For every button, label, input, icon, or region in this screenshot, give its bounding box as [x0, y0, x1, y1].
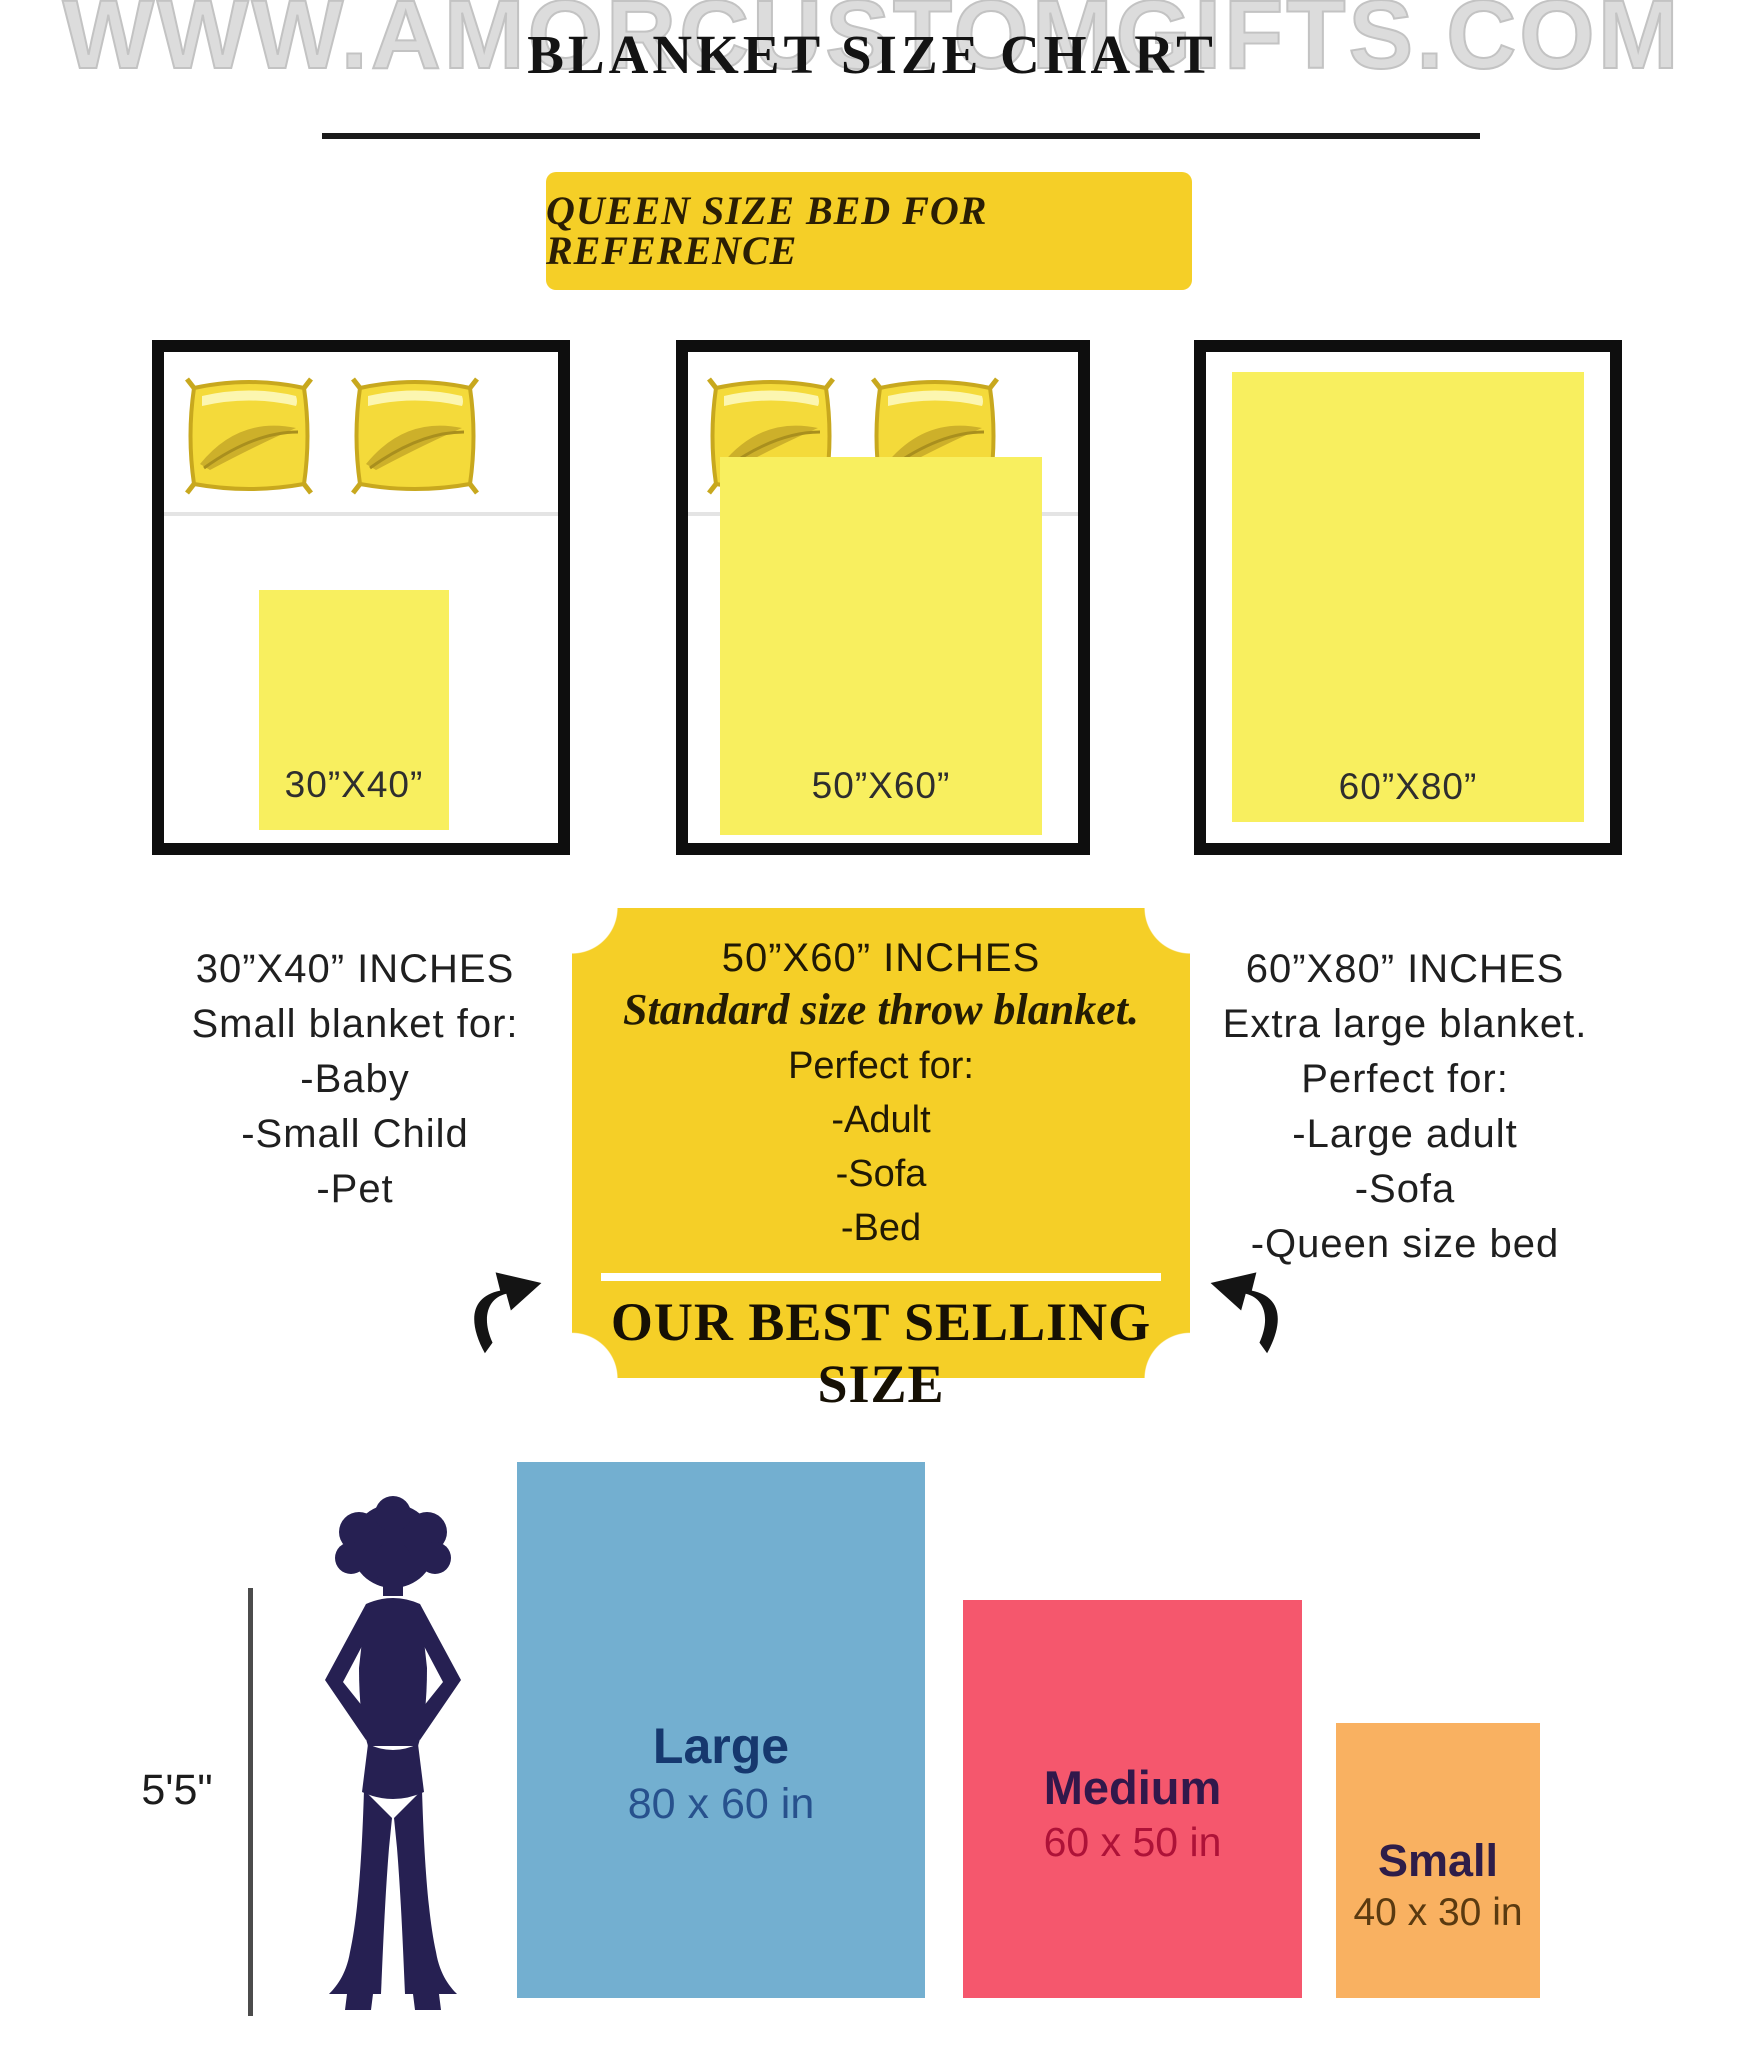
swatch-name: Large — [517, 1717, 925, 1775]
size-use-item: -Baby — [105, 1052, 605, 1107]
blanket-overlay-60x80: 60”X80” — [1232, 372, 1584, 822]
blanket-swatch-small: Small 40 x 30 in — [1336, 1723, 1540, 1998]
ticket-divider — [601, 1273, 1161, 1281]
best-seller-ticket-50x60: 50”X60” INCHES Standard size throw blank… — [572, 908, 1190, 1378]
pillow-icon — [184, 372, 314, 500]
curved-arrow-left-icon — [1206, 1262, 1290, 1356]
blanket-swatch-large: Large 80 x 60 in — [517, 1462, 925, 1998]
perfect-for-label: Perfect for: — [572, 1039, 1190, 1093]
swatch-dimensions: 80 x 60 in — [517, 1775, 925, 1833]
swatch-dimensions: 40 x 30 in — [1336, 1887, 1540, 1940]
size-use-item: -Sofa — [572, 1147, 1190, 1201]
bed-diagram-60x80: 60”X80” — [1194, 340, 1622, 855]
swatch-dimensions: 60 x 50 in — [963, 1815, 1302, 1870]
pillow-icon — [350, 372, 480, 500]
bed-sheet-divider — [164, 512, 558, 516]
swatch-name: Medium — [963, 1760, 1302, 1815]
blanket-size-label: 50”X60” — [720, 765, 1042, 807]
height-ruler-line — [248, 1588, 253, 2016]
size-column-title: 50”X60” INCHES — [572, 908, 1190, 981]
page-title: BLANKET SIZE CHART — [0, 22, 1744, 88]
size-column-title: 30”X40” INCHES — [105, 942, 605, 997]
size-column-30x40: 30”X40” INCHES Small blanket for: -Baby … — [105, 942, 605, 1217]
size-use-item: -Sofa — [1155, 1162, 1655, 1217]
bed-diagram-50x60: 50”X60” — [676, 340, 1090, 855]
size-use-item: -Small Child — [105, 1107, 605, 1162]
height-label: 5'5" — [112, 1766, 242, 1815]
curved-arrow-right-icon — [462, 1262, 546, 1356]
size-column-60x80: 60”X80” INCHES Extra large blanket. Perf… — [1155, 942, 1655, 1272]
title-underline — [322, 133, 1480, 139]
blanket-swatch-medium: Medium 60 x 50 in — [963, 1600, 1302, 1998]
swatch-name: Small — [1336, 1835, 1540, 1887]
size-column-subtitle: Extra large blanket. — [1155, 997, 1655, 1052]
blanket-overlay-30x40: 30”X40” — [259, 590, 449, 830]
blanket-size-chart-infographic: WWW.AMORCUSTOMGIFTS.COM BLANKET SIZE CHA… — [0, 0, 1744, 2048]
size-column-title: 60”X80” INCHES — [1155, 942, 1655, 997]
blanket-overlay-50x60: 50”X60” — [720, 457, 1042, 835]
reference-banner: QUEEN SIZE BED FOR REFERENCE — [546, 172, 1192, 290]
size-use-item: -Pet — [105, 1162, 605, 1217]
size-use-item: -Large adult — [1155, 1107, 1655, 1162]
size-use-item: -Adult — [572, 1093, 1190, 1147]
woman-silhouette-icon — [287, 1496, 499, 2018]
size-column-subtitle: Small blanket for: — [105, 997, 605, 1052]
size-column-tagline: Standard size throw blanket. — [572, 981, 1190, 1039]
bed-diagram-30x40: 30”X40” — [152, 340, 570, 855]
blanket-size-label: 30”X40” — [259, 764, 449, 806]
perfect-for-label: Perfect for: — [1155, 1052, 1655, 1107]
blanket-size-label: 60”X80” — [1232, 766, 1584, 808]
best-selling-size-label: OUR BEST SELLING SIZE — [572, 1291, 1190, 1415]
size-use-item: -Bed — [572, 1201, 1190, 1255]
